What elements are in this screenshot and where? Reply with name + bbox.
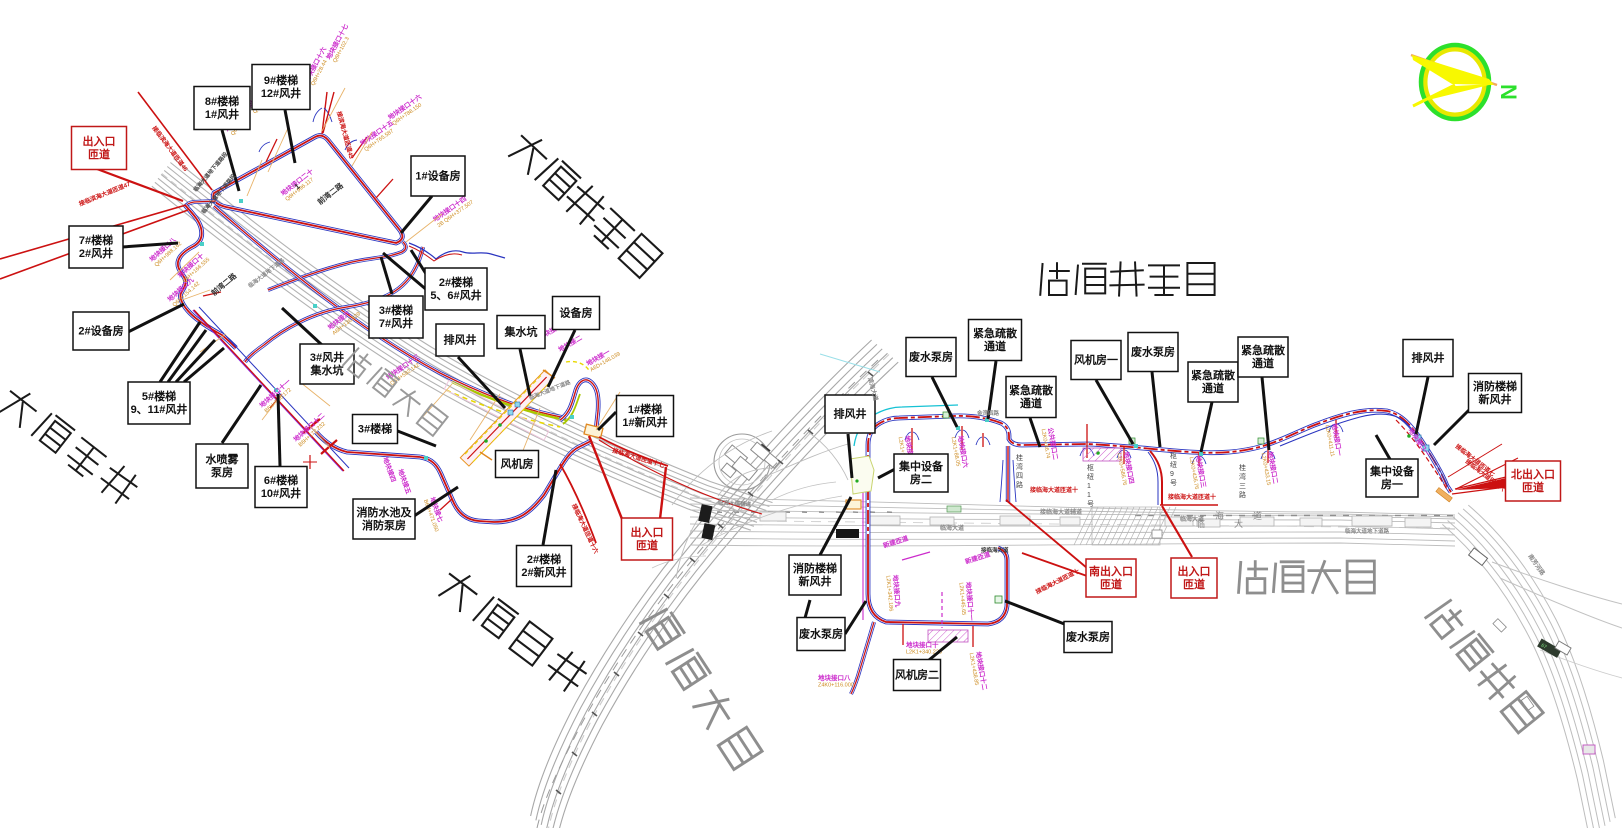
svg-text:泵房: 泵房	[211, 465, 233, 479]
svg-text:5、6#风井: 5、6#风井	[430, 288, 481, 302]
svg-text:7#风井: 7#风井	[379, 316, 413, 330]
svg-text:通道: 通道	[1202, 381, 1224, 395]
svg-text:枢: 枢	[1087, 463, 1094, 472]
svg-text:7#楼梯: 7#楼梯	[79, 233, 113, 247]
svg-text:废水泵房: 废水泵房	[1131, 345, 1175, 359]
svg-text:新风井: 新风井	[1479, 392, 1512, 406]
svg-text:匝道: 匝道	[636, 538, 658, 552]
svg-text:水喷雾: 水喷雾	[206, 452, 240, 466]
svg-text:接临海大道匝道十: 接临海大道匝道十	[1029, 486, 1078, 494]
svg-text:房二: 房二	[910, 472, 932, 486]
svg-text:湾: 湾	[1016, 462, 1023, 471]
svg-text:风机房: 风机房	[501, 457, 534, 471]
svg-text:路: 路	[1239, 490, 1246, 499]
svg-text:12#风井: 12#风井	[261, 86, 301, 100]
svg-text:匝道: 匝道	[1522, 480, 1544, 494]
svg-text:消防楼梯: 消防楼梯	[793, 561, 837, 575]
svg-text:风机房一: 风机房一	[1074, 353, 1118, 367]
svg-text:集水坑: 集水坑	[504, 325, 538, 339]
svg-text:出入口: 出入口	[1178, 564, 1211, 578]
svg-text:8#楼梯: 8#楼梯	[205, 94, 239, 108]
svg-text:紧急疏散: 紧急疏散	[973, 326, 1018, 340]
svg-text:排风井: 排风井	[834, 407, 867, 421]
svg-text:N: N	[1496, 84, 1521, 100]
svg-text:接临海大道匝道十: 接临海大道匝道十	[1167, 493, 1216, 501]
svg-text:消防水池及: 消防水池及	[357, 505, 413, 519]
svg-text:1#楼梯: 1#楼梯	[628, 402, 662, 416]
svg-text:2#风井: 2#风井	[79, 246, 113, 260]
svg-text:匝道: 匝道	[88, 147, 110, 161]
svg-text:2#新风井: 2#新风井	[521, 565, 566, 579]
svg-text:通道: 通道	[984, 339, 1006, 353]
svg-text:临海大道地下道路: 临海大道地下道路	[1345, 527, 1390, 535]
svg-text:通道: 通道	[1252, 356, 1274, 370]
svg-text:新风井: 新风井	[799, 574, 832, 588]
svg-text:道: 道	[1253, 510, 1262, 521]
svg-text:2#楼梯: 2#楼梯	[439, 275, 473, 289]
svg-text:大: 大	[1234, 518, 1243, 529]
svg-text:四: 四	[1016, 472, 1023, 480]
svg-text:9: 9	[1170, 471, 1174, 478]
svg-text:风机房二: 风机房二	[895, 668, 939, 682]
svg-text:匝道: 匝道	[1183, 577, 1205, 591]
svg-text:10#风井: 10#风井	[261, 486, 301, 500]
svg-text:出入口: 出入口	[83, 134, 116, 148]
svg-text:枢: 枢	[1170, 451, 1177, 460]
svg-text:9、11#风井: 9、11#风井	[131, 402, 188, 416]
svg-text:紧急疏散: 紧急疏散	[1009, 383, 1054, 397]
svg-text:9#楼梯: 9#楼梯	[264, 73, 298, 87]
svg-text:纽: 纽	[1087, 472, 1094, 481]
svg-text:紧急疏散: 紧急疏散	[1191, 368, 1236, 382]
svg-text:北出入口: 北出入口	[1511, 467, 1555, 481]
svg-text:2#设备房: 2#设备房	[78, 324, 123, 338]
svg-text:1#风井: 1#风井	[205, 107, 239, 121]
svg-text:废水泵房: 废水泵房	[799, 627, 843, 641]
svg-text:临海大道: 临海大道	[940, 524, 964, 532]
svg-text:地块接口十: 地块接口十	[906, 640, 939, 649]
svg-text:1: 1	[1087, 492, 1091, 499]
svg-text:废水泵房: 废水泵房	[1066, 630, 1110, 644]
svg-text:三: 三	[1239, 482, 1246, 490]
svg-text:湾: 湾	[1239, 472, 1246, 481]
svg-text:通道: 通道	[1020, 396, 1042, 410]
svg-text:集中设备: 集中设备	[1369, 464, 1415, 478]
svg-text:3#楼梯: 3#楼梯	[379, 303, 413, 317]
svg-text:房一: 房一	[1381, 477, 1403, 491]
svg-text:1: 1	[1087, 483, 1091, 490]
svg-text:6#楼梯: 6#楼梯	[264, 473, 298, 487]
svg-text:设备房: 设备房	[560, 306, 593, 320]
svg-text:纽: 纽	[1170, 460, 1177, 469]
svg-text:金湾四路: 金湾四路	[976, 409, 1000, 417]
svg-text:5#楼梯: 5#楼梯	[142, 389, 176, 403]
svg-text:排风井: 排风井	[444, 333, 477, 347]
svg-text:桂: 桂	[1239, 463, 1246, 472]
svg-text:桂: 桂	[1016, 453, 1023, 462]
svg-text:排风井: 排风井	[1412, 351, 1445, 365]
svg-text:废水泵房: 废水泵房	[909, 350, 953, 364]
svg-text:南出入口: 南出入口	[1089, 564, 1133, 578]
svg-text:接临海大道辅道: 接临海大道辅道	[1039, 508, 1082, 516]
svg-text:集中设备: 集中设备	[898, 459, 944, 473]
svg-text:临: 临	[1196, 518, 1205, 529]
svg-text:1#设备房: 1#设备房	[415, 169, 460, 183]
svg-text:紧急疏散: 紧急疏散	[1241, 343, 1286, 357]
svg-text:地块接口八: 地块接口八	[818, 673, 851, 682]
svg-text:集水坑: 集水坑	[310, 363, 344, 377]
svg-text:出入口: 出入口	[631, 525, 664, 539]
svg-text:路: 路	[1016, 480, 1023, 489]
svg-text:Z4K0+116.000: Z4K0+116.000	[818, 683, 854, 689]
svg-text:匝道: 匝道	[1100, 577, 1122, 591]
svg-text:3#楼梯: 3#楼梯	[358, 422, 392, 436]
svg-text:号: 号	[1170, 479, 1177, 487]
svg-text:3#风井: 3#风井	[310, 350, 344, 364]
svg-text:消防楼梯: 消防楼梯	[1473, 379, 1517, 393]
svg-text:消防泵房: 消防泵房	[362, 518, 406, 532]
svg-text:1#新风井: 1#新风井	[622, 415, 667, 429]
svg-text:海: 海	[1215, 510, 1224, 521]
svg-text:2#楼梯: 2#楼梯	[527, 552, 561, 566]
svg-text:号: 号	[1087, 500, 1094, 508]
